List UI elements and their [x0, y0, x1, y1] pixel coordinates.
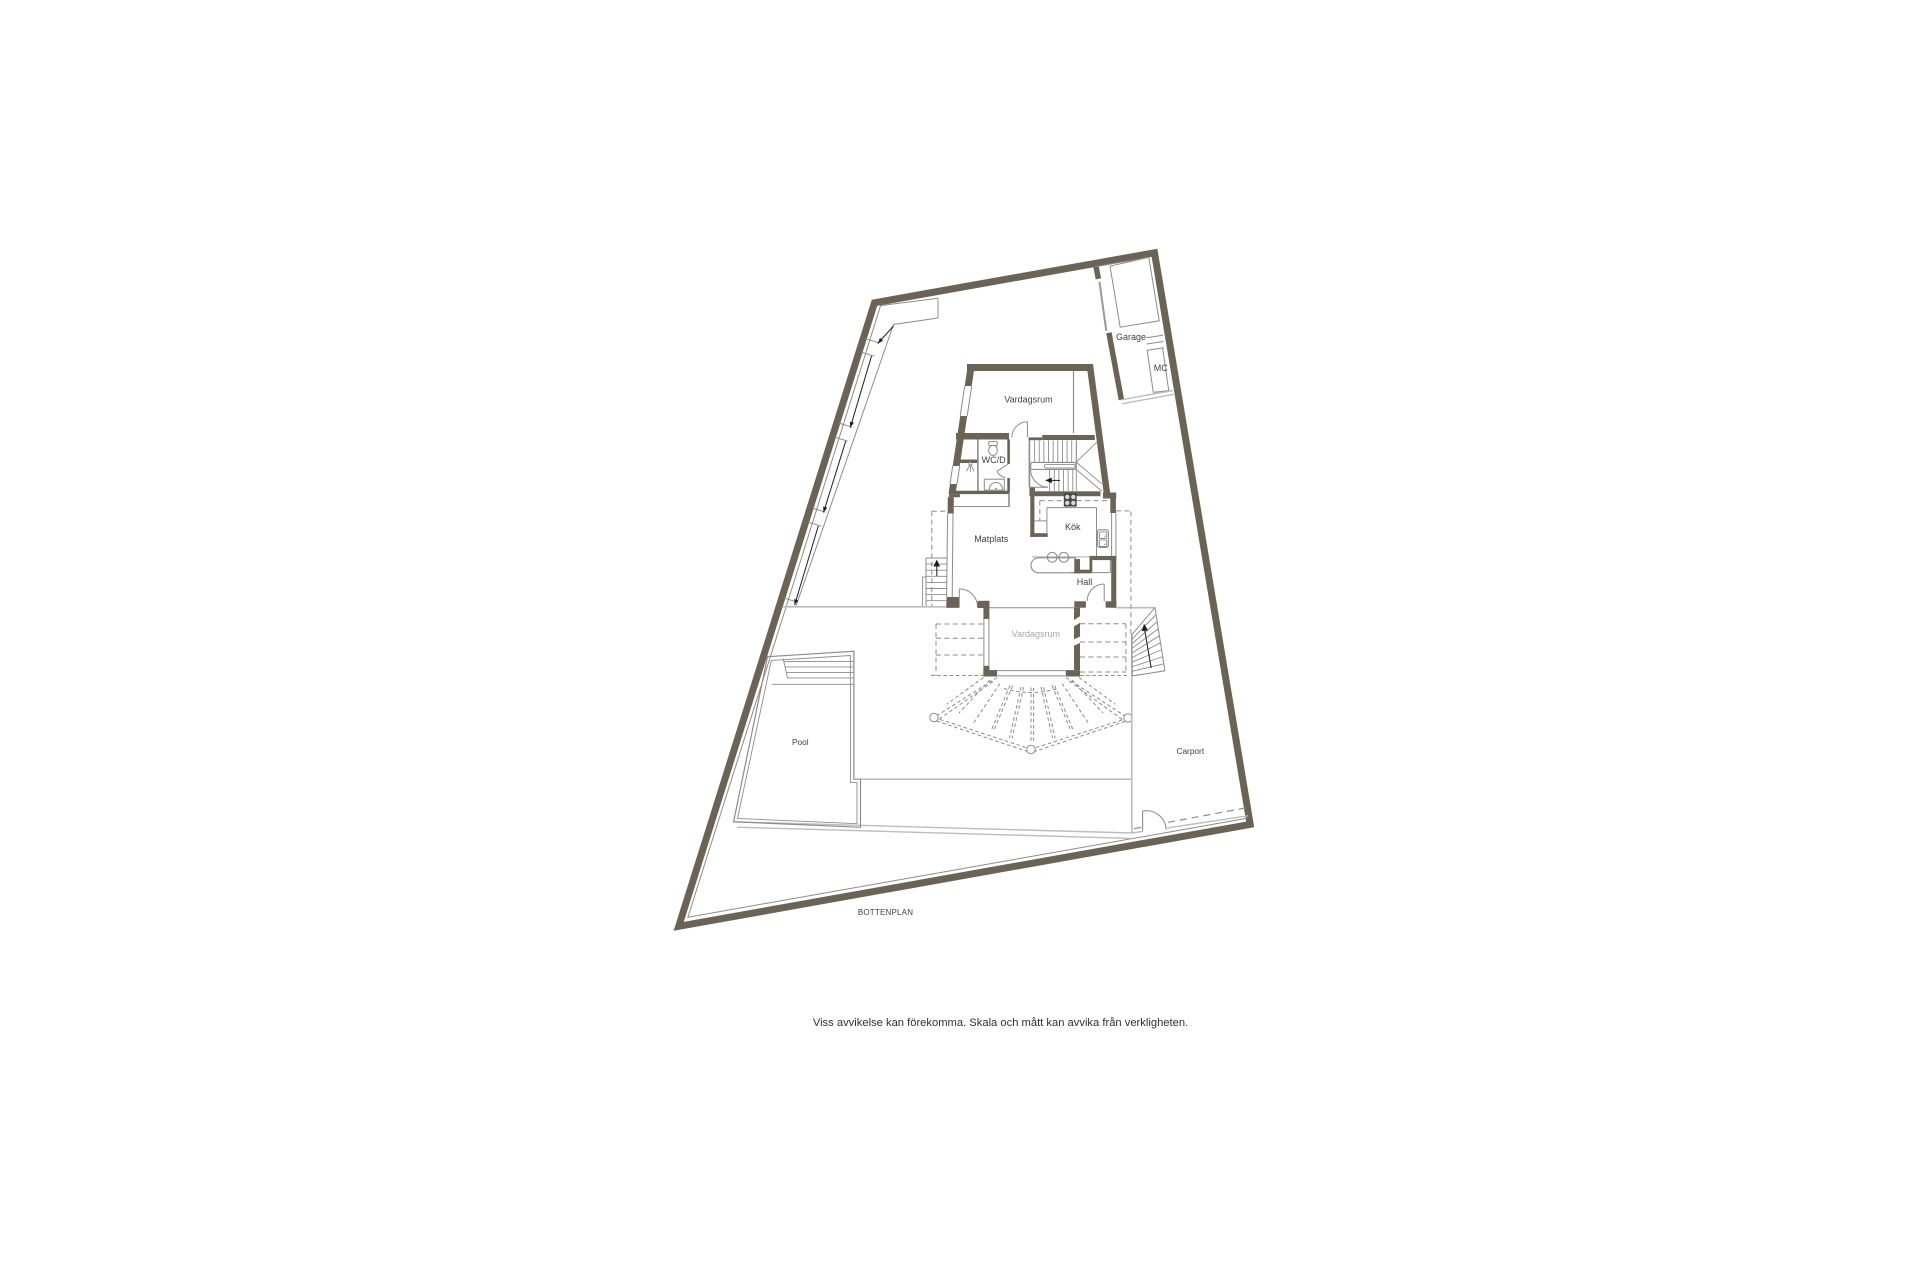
svg-text:BOTTENPLAN: BOTTENPLAN [858, 908, 913, 917]
svg-text:MC: MC [1154, 363, 1168, 373]
svg-text:Hall: Hall [1077, 577, 1093, 587]
svg-text:WC/D: WC/D [982, 455, 1006, 465]
svg-text:Vardagsrum: Vardagsrum [1004, 395, 1052, 405]
svg-text:Carport: Carport [1176, 746, 1204, 756]
svg-text:Viss avvikelse kan förekomma.: Viss avvikelse kan förekomma. Skala och … [813, 1017, 1188, 1029]
svg-text:Garage: Garage [1116, 332, 1146, 342]
svg-text:Vardagsrum: Vardagsrum [1012, 629, 1060, 639]
svg-text:Pool: Pool [792, 737, 809, 747]
svg-text:Kök: Kök [1065, 522, 1081, 532]
svg-text:Matplats: Matplats [974, 534, 1009, 544]
